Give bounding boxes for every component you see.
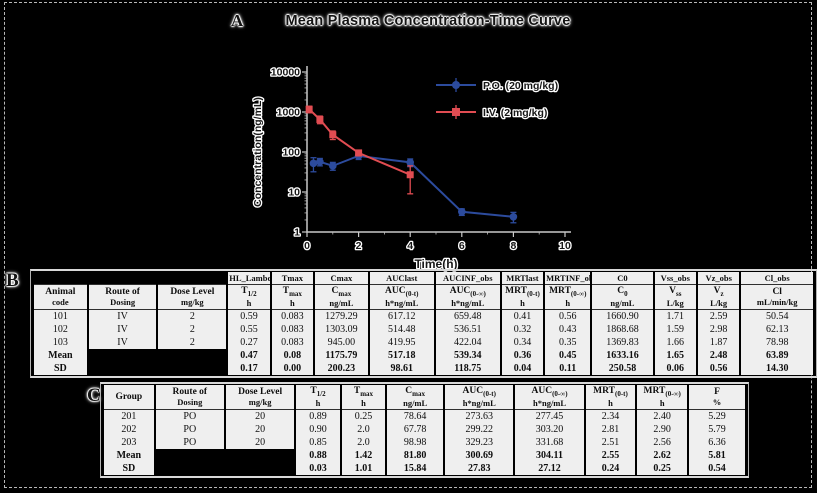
header-cell: C0ng/mL bbox=[592, 285, 652, 310]
table-cell: 0.90 bbox=[296, 423, 339, 436]
table-cell: 273.63 bbox=[445, 410, 513, 423]
series-po bbox=[310, 152, 518, 223]
table-cell: 200.23 bbox=[315, 362, 368, 375]
param-code-cell: Vz_obs bbox=[698, 272, 739, 285]
table-cell: 1.01 bbox=[342, 462, 385, 475]
data-point bbox=[306, 106, 313, 113]
table-cell: 2 bbox=[158, 310, 226, 323]
header-cell: AUC(0-t)h*ng/mL bbox=[370, 285, 434, 310]
table-cell: 102 bbox=[34, 323, 87, 336]
y-tick-label: 10 bbox=[288, 187, 300, 199]
legend-marker bbox=[452, 108, 460, 116]
header-cell: Dose Levelmg/kg bbox=[226, 385, 294, 410]
table-cell: 78.98 bbox=[741, 336, 813, 349]
table-cell: 0.06 bbox=[655, 362, 696, 375]
param-code-cell: MRTlast bbox=[502, 272, 543, 285]
table-cell: Mean bbox=[104, 449, 154, 462]
legend-marker bbox=[452, 81, 460, 89]
table-cell: 63.89 bbox=[741, 349, 813, 362]
table-cell: 81.80 bbox=[387, 449, 443, 462]
table-cell: PO bbox=[156, 436, 224, 449]
table-cell bbox=[226, 462, 294, 475]
table-cell: 0.56 bbox=[545, 310, 590, 323]
table-cell: 0.27 bbox=[228, 336, 269, 349]
table-cell: 2.40 bbox=[637, 410, 687, 423]
table-cell bbox=[226, 449, 294, 462]
data-point bbox=[406, 159, 414, 167]
header-cell: VssL/kg bbox=[655, 285, 696, 310]
table-cell: 20 bbox=[226, 410, 294, 423]
table-cell: 1369.83 bbox=[592, 336, 652, 349]
param-code-cell bbox=[34, 272, 87, 285]
table-cell: 250.58 bbox=[592, 362, 652, 375]
header-cell: MRT(0-∞)h bbox=[637, 385, 687, 410]
param-code-cell bbox=[158, 272, 226, 285]
y-tick-label: 10000 bbox=[271, 67, 300, 79]
header-cell: MRT(0-∞)h bbox=[545, 285, 590, 310]
table-cell: 50.54 bbox=[741, 310, 813, 323]
table-cell: 5.81 bbox=[689, 449, 745, 462]
table-cell: 0.08 bbox=[272, 349, 313, 362]
x-tick-label: 6 bbox=[459, 240, 465, 252]
data-point bbox=[407, 171, 414, 178]
data-point bbox=[329, 131, 336, 138]
table-cell: 659.48 bbox=[436, 310, 500, 323]
table-cell: 1.65 bbox=[655, 349, 696, 362]
header-cell: VzL/kg bbox=[698, 285, 739, 310]
param-code-cell: C0 bbox=[592, 272, 652, 285]
table-cell: 0.34 bbox=[502, 336, 543, 349]
table-cell: 0.85 bbox=[296, 436, 339, 449]
table-cell: 303.20 bbox=[515, 423, 583, 436]
header-cell: Dose Levelmg/kg bbox=[158, 285, 226, 310]
param-code-cell: Tmax bbox=[272, 272, 313, 285]
table-cell: 78.64 bbox=[387, 410, 443, 423]
table-cell: 617.12 bbox=[370, 310, 434, 323]
series-iv bbox=[306, 106, 414, 194]
table-cell: 2.48 bbox=[698, 349, 739, 362]
table-cell: 1.66 bbox=[655, 336, 696, 349]
table-cell: 2 bbox=[158, 323, 226, 336]
table-cell: 0.41 bbox=[502, 310, 543, 323]
table-cell: 2.55 bbox=[586, 449, 636, 462]
table-cell: 202 bbox=[104, 423, 154, 436]
table-cell: 945.00 bbox=[315, 336, 368, 349]
table-cell: 0.43 bbox=[545, 323, 590, 336]
table-cell: 1175.79 bbox=[315, 349, 368, 362]
param-code-cell bbox=[89, 272, 157, 285]
param-code-cell: HL_Lambda bbox=[228, 272, 269, 285]
table-cell: 1.59 bbox=[655, 323, 696, 336]
data-point bbox=[458, 208, 466, 216]
table-cell: 0.17 bbox=[228, 362, 269, 375]
data-point bbox=[316, 116, 323, 123]
table-cell: 2.81 bbox=[586, 423, 636, 436]
table-cell: 2.51 bbox=[586, 436, 636, 449]
y-tick-label: 100 bbox=[282, 147, 300, 159]
data-point bbox=[316, 158, 324, 166]
header-cell: Route ofDosing bbox=[89, 285, 157, 310]
param-code-cell: AUCINF_obs bbox=[436, 272, 500, 285]
table-cell: 329.23 bbox=[445, 436, 513, 449]
param-code-cell: Cl_obs bbox=[741, 272, 813, 285]
header-cell: T1/2h bbox=[296, 385, 339, 410]
table-cell: 1.87 bbox=[698, 336, 739, 349]
table-cell: 0.083 bbox=[272, 323, 313, 336]
table-cell: 331.68 bbox=[515, 436, 583, 449]
table-cell: 2 bbox=[158, 336, 226, 349]
table-cell: Mean bbox=[34, 349, 87, 362]
po-pk-table: GroupRoute ofDosingDose Levelmg/kgT1/2hT… bbox=[102, 385, 747, 475]
table-cell: PO bbox=[156, 410, 224, 423]
param-code-cell: Cmax bbox=[315, 272, 368, 285]
chart-title: Mean Plasma Concentration-Time Curve bbox=[256, 13, 600, 29]
table-cell: 0.25 bbox=[637, 462, 687, 475]
header-cell: MRT(0-t)h bbox=[502, 285, 543, 310]
table-cell: 203 bbox=[104, 436, 154, 449]
table-cell: 20 bbox=[226, 436, 294, 449]
table-cell: SD bbox=[34, 362, 87, 375]
data-point bbox=[310, 160, 318, 168]
header-cell: AUC(0-∞)h*ng/mL bbox=[515, 385, 583, 410]
table-cell: 5.29 bbox=[689, 410, 745, 423]
x-tick-label: 2 bbox=[356, 240, 362, 252]
table-cell: 0.25 bbox=[342, 410, 385, 423]
table-cell: 1.42 bbox=[342, 449, 385, 462]
header-cell: T1/2h bbox=[228, 285, 269, 310]
table-cell bbox=[158, 349, 226, 362]
panel-a-label: A bbox=[231, 11, 243, 31]
panel-c-label: C bbox=[87, 385, 101, 407]
x-tick-label: 4 bbox=[407, 240, 413, 252]
table-cell: 0.03 bbox=[296, 462, 339, 475]
table-cell: SD bbox=[104, 462, 154, 475]
table-cell: 0.54 bbox=[689, 462, 745, 475]
table-cell: 27.12 bbox=[515, 462, 583, 475]
table-cell: 514.48 bbox=[370, 323, 434, 336]
x-tick-label: 10 bbox=[559, 240, 571, 252]
table-cell: 0.00 bbox=[272, 362, 313, 375]
param-code-cell: MRTINF_obs bbox=[545, 272, 590, 285]
table-cell: 1303.09 bbox=[315, 323, 368, 336]
header-cell: Group bbox=[104, 385, 154, 410]
x-tick-label: 0 bbox=[304, 240, 310, 252]
table-cell bbox=[89, 349, 157, 362]
header-cell: Tmaxh bbox=[272, 285, 313, 310]
table-cell: 62.13 bbox=[741, 323, 813, 336]
data-point bbox=[329, 162, 337, 170]
y-tick-label: 1000 bbox=[277, 107, 301, 119]
y-axis-title: Concentration(ng/mL) bbox=[252, 97, 264, 207]
table-cell: 1868.68 bbox=[592, 323, 652, 336]
header-cell: Route ofDosing bbox=[156, 385, 224, 410]
table-cell: IV bbox=[89, 336, 157, 349]
table-cell: 0.083 bbox=[272, 336, 313, 349]
table-cell: 1660.90 bbox=[592, 310, 652, 323]
table-cell bbox=[156, 462, 224, 475]
table-cell: IV bbox=[89, 323, 157, 336]
table-cell: 2.98 bbox=[698, 323, 739, 336]
table-cell: 0.11 bbox=[545, 362, 590, 375]
legend-label: I.V. (2 mg/kg) bbox=[483, 107, 547, 119]
table-cell: 2.56 bbox=[637, 436, 687, 449]
legend-label: P.O. (20 mg/kg) bbox=[483, 80, 558, 92]
table-cell bbox=[158, 362, 226, 375]
table-cell: 0.35 bbox=[545, 336, 590, 349]
axes: 1101001000100000246810 bbox=[271, 66, 571, 252]
table-cell: 0.88 bbox=[296, 449, 339, 462]
table-cell: 0.45 bbox=[545, 349, 590, 362]
data-point bbox=[355, 149, 362, 156]
table-cell: 20 bbox=[226, 423, 294, 436]
header-cell: MRT(0-t)h bbox=[586, 385, 636, 410]
table-cell: 0.89 bbox=[296, 410, 339, 423]
legend: P.O. (20 mg/kg)I.V. (2 mg/kg) bbox=[436, 78, 558, 119]
table-cell: 201 bbox=[104, 410, 154, 423]
y-tick-label: 1 bbox=[294, 227, 300, 239]
table-cell: 14.30 bbox=[741, 362, 813, 375]
table-cell: 277.45 bbox=[515, 410, 583, 423]
x-tick-label: 8 bbox=[510, 240, 516, 252]
table-cell: 0.55 bbox=[228, 323, 269, 336]
data-point bbox=[510, 213, 518, 221]
param-code-cell: AUClast bbox=[370, 272, 434, 285]
table-cell: 0.47 bbox=[228, 349, 269, 362]
table-cell: 1633.16 bbox=[592, 349, 652, 362]
table-cell: 98.98 bbox=[387, 436, 443, 449]
table-cell: 517.18 bbox=[370, 349, 434, 362]
iv-pk-table: HL_LambdaTmaxCmaxAUClastAUCINF_obsMRTlas… bbox=[32, 272, 815, 375]
param-code-cell: Vss_obs bbox=[655, 272, 696, 285]
table-cell: 536.51 bbox=[436, 323, 500, 336]
table-cell: 2.59 bbox=[698, 310, 739, 323]
table-cell: 419.95 bbox=[370, 336, 434, 349]
table-cell: 5.79 bbox=[689, 423, 745, 436]
table-cell: 422.04 bbox=[436, 336, 500, 349]
iv-pk-table-wrap: HL_LambdaTmaxCmaxAUClastAUCINF_obsMRTlas… bbox=[30, 269, 817, 378]
table-cell: 539.34 bbox=[436, 349, 500, 362]
table-cell: 1.71 bbox=[655, 310, 696, 323]
header-cell: Animalcode bbox=[34, 285, 87, 310]
panel-b-label: B bbox=[6, 270, 19, 292]
table-cell bbox=[89, 362, 157, 375]
table-cell: 300.69 bbox=[445, 449, 513, 462]
table-cell: 103 bbox=[34, 336, 87, 349]
header-cell: F% bbox=[689, 385, 745, 410]
table-cell: 2.0 bbox=[342, 423, 385, 436]
table-cell: 0.32 bbox=[502, 323, 543, 336]
concentration-time-chart: 1101001000100000246810Time(h)Concentrati… bbox=[248, 40, 596, 280]
table-cell: 2.34 bbox=[586, 410, 636, 423]
table-cell: 98.61 bbox=[370, 362, 434, 375]
table-cell: IV bbox=[89, 310, 157, 323]
table-cell: 0.36 bbox=[502, 349, 543, 362]
table-cell: 2.0 bbox=[342, 436, 385, 449]
table-cell: 0.56 bbox=[698, 362, 739, 375]
table-cell: 2.90 bbox=[637, 423, 687, 436]
table-cell: 6.36 bbox=[689, 436, 745, 449]
header-cell: ClmL/min/kg bbox=[741, 285, 813, 310]
table-cell bbox=[156, 449, 224, 462]
table-cell: 27.83 bbox=[445, 462, 513, 475]
header-cell: Tmaxh bbox=[342, 385, 385, 410]
table-cell: 67.78 bbox=[387, 423, 443, 436]
table-cell: 0.24 bbox=[586, 462, 636, 475]
table-cell: 299.22 bbox=[445, 423, 513, 436]
table-cell: 304.11 bbox=[515, 449, 583, 462]
table-cell: 0.59 bbox=[228, 310, 269, 323]
table-cell: 118.75 bbox=[436, 362, 500, 375]
table-cell: 1279.29 bbox=[315, 310, 368, 323]
header-cell: AUC(0-t)h*ng/mL bbox=[445, 385, 513, 410]
table-cell: 2.62 bbox=[637, 449, 687, 462]
table-cell: 0.04 bbox=[502, 362, 543, 375]
table-cell: 15.84 bbox=[387, 462, 443, 475]
header-cell: Cmaxng/mL bbox=[315, 285, 368, 310]
table-cell: 101 bbox=[34, 310, 87, 323]
header-cell: Cmaxng/mL bbox=[387, 385, 443, 410]
table-cell: 0.083 bbox=[272, 310, 313, 323]
header-cell: AUC(0-∞)h*ng/mL bbox=[436, 285, 500, 310]
po-pk-table-wrap: GroupRoute ofDosingDose Levelmg/kgT1/2hT… bbox=[100, 382, 749, 478]
table-cell: PO bbox=[156, 423, 224, 436]
